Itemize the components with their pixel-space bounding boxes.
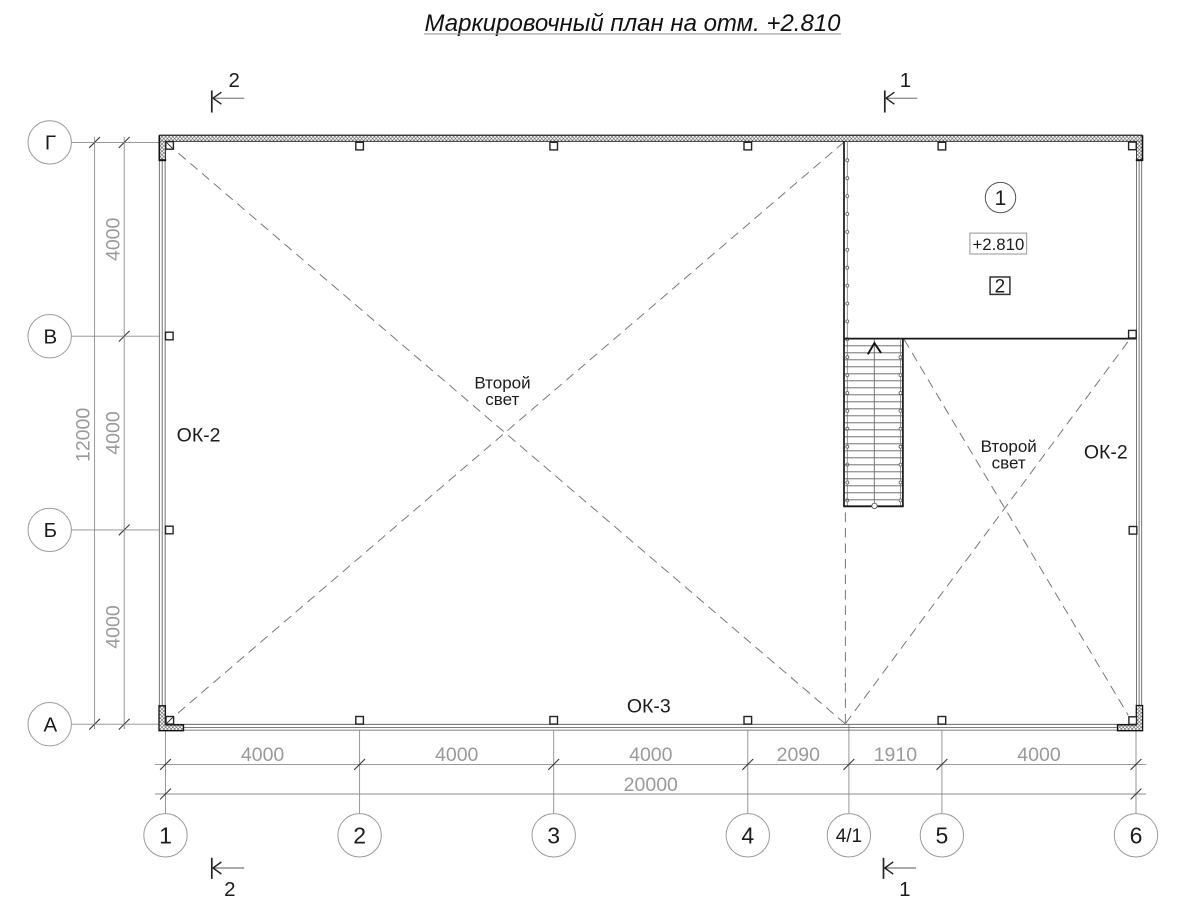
- svg-text:4000: 4000: [102, 605, 124, 649]
- svg-text:4000: 4000: [102, 411, 124, 455]
- svg-text:4000: 4000: [435, 744, 479, 766]
- svg-text:12000: 12000: [72, 408, 94, 462]
- svg-text:1: 1: [899, 878, 910, 900]
- svg-text:В: В: [44, 326, 58, 349]
- svg-text:1: 1: [159, 823, 172, 849]
- svg-text:4/1: 4/1: [836, 826, 862, 847]
- svg-text:ОК-3: ОК-3: [627, 696, 671, 718]
- svg-text:Маркировочный план на отм. +2.: Маркировочный план на отм. +2.810: [424, 10, 841, 37]
- svg-text:ОК-2: ОК-2: [1084, 442, 1128, 464]
- svg-text:Г: Г: [45, 132, 56, 155]
- svg-text:2090: 2090: [777, 744, 821, 766]
- svg-text:6: 6: [1130, 823, 1143, 849]
- svg-text:2: 2: [995, 276, 1006, 297]
- svg-text:4000: 4000: [629, 744, 673, 766]
- svg-text:ОК-2: ОК-2: [177, 425, 221, 447]
- svg-text:1910: 1910: [874, 744, 918, 766]
- svg-text:Б: Б: [44, 519, 57, 542]
- svg-text:1: 1: [995, 187, 1007, 210]
- svg-text:4: 4: [741, 823, 754, 849]
- svg-text:5: 5: [936, 823, 949, 849]
- svg-text:4000: 4000: [102, 217, 124, 261]
- svg-text:свет: свет: [485, 390, 519, 409]
- svg-text:4000: 4000: [1017, 744, 1061, 766]
- svg-text:+2.810: +2.810: [973, 235, 1025, 254]
- svg-text:1: 1: [900, 69, 911, 92]
- svg-text:2: 2: [228, 69, 239, 92]
- svg-text:3: 3: [547, 823, 560, 849]
- svg-text:4000: 4000: [241, 744, 285, 766]
- svg-text:20000: 20000: [624, 774, 678, 796]
- svg-text:свет: свет: [992, 454, 1026, 473]
- svg-text:2: 2: [353, 823, 366, 849]
- svg-text:2: 2: [224, 878, 235, 900]
- svg-text:А: А: [44, 714, 58, 737]
